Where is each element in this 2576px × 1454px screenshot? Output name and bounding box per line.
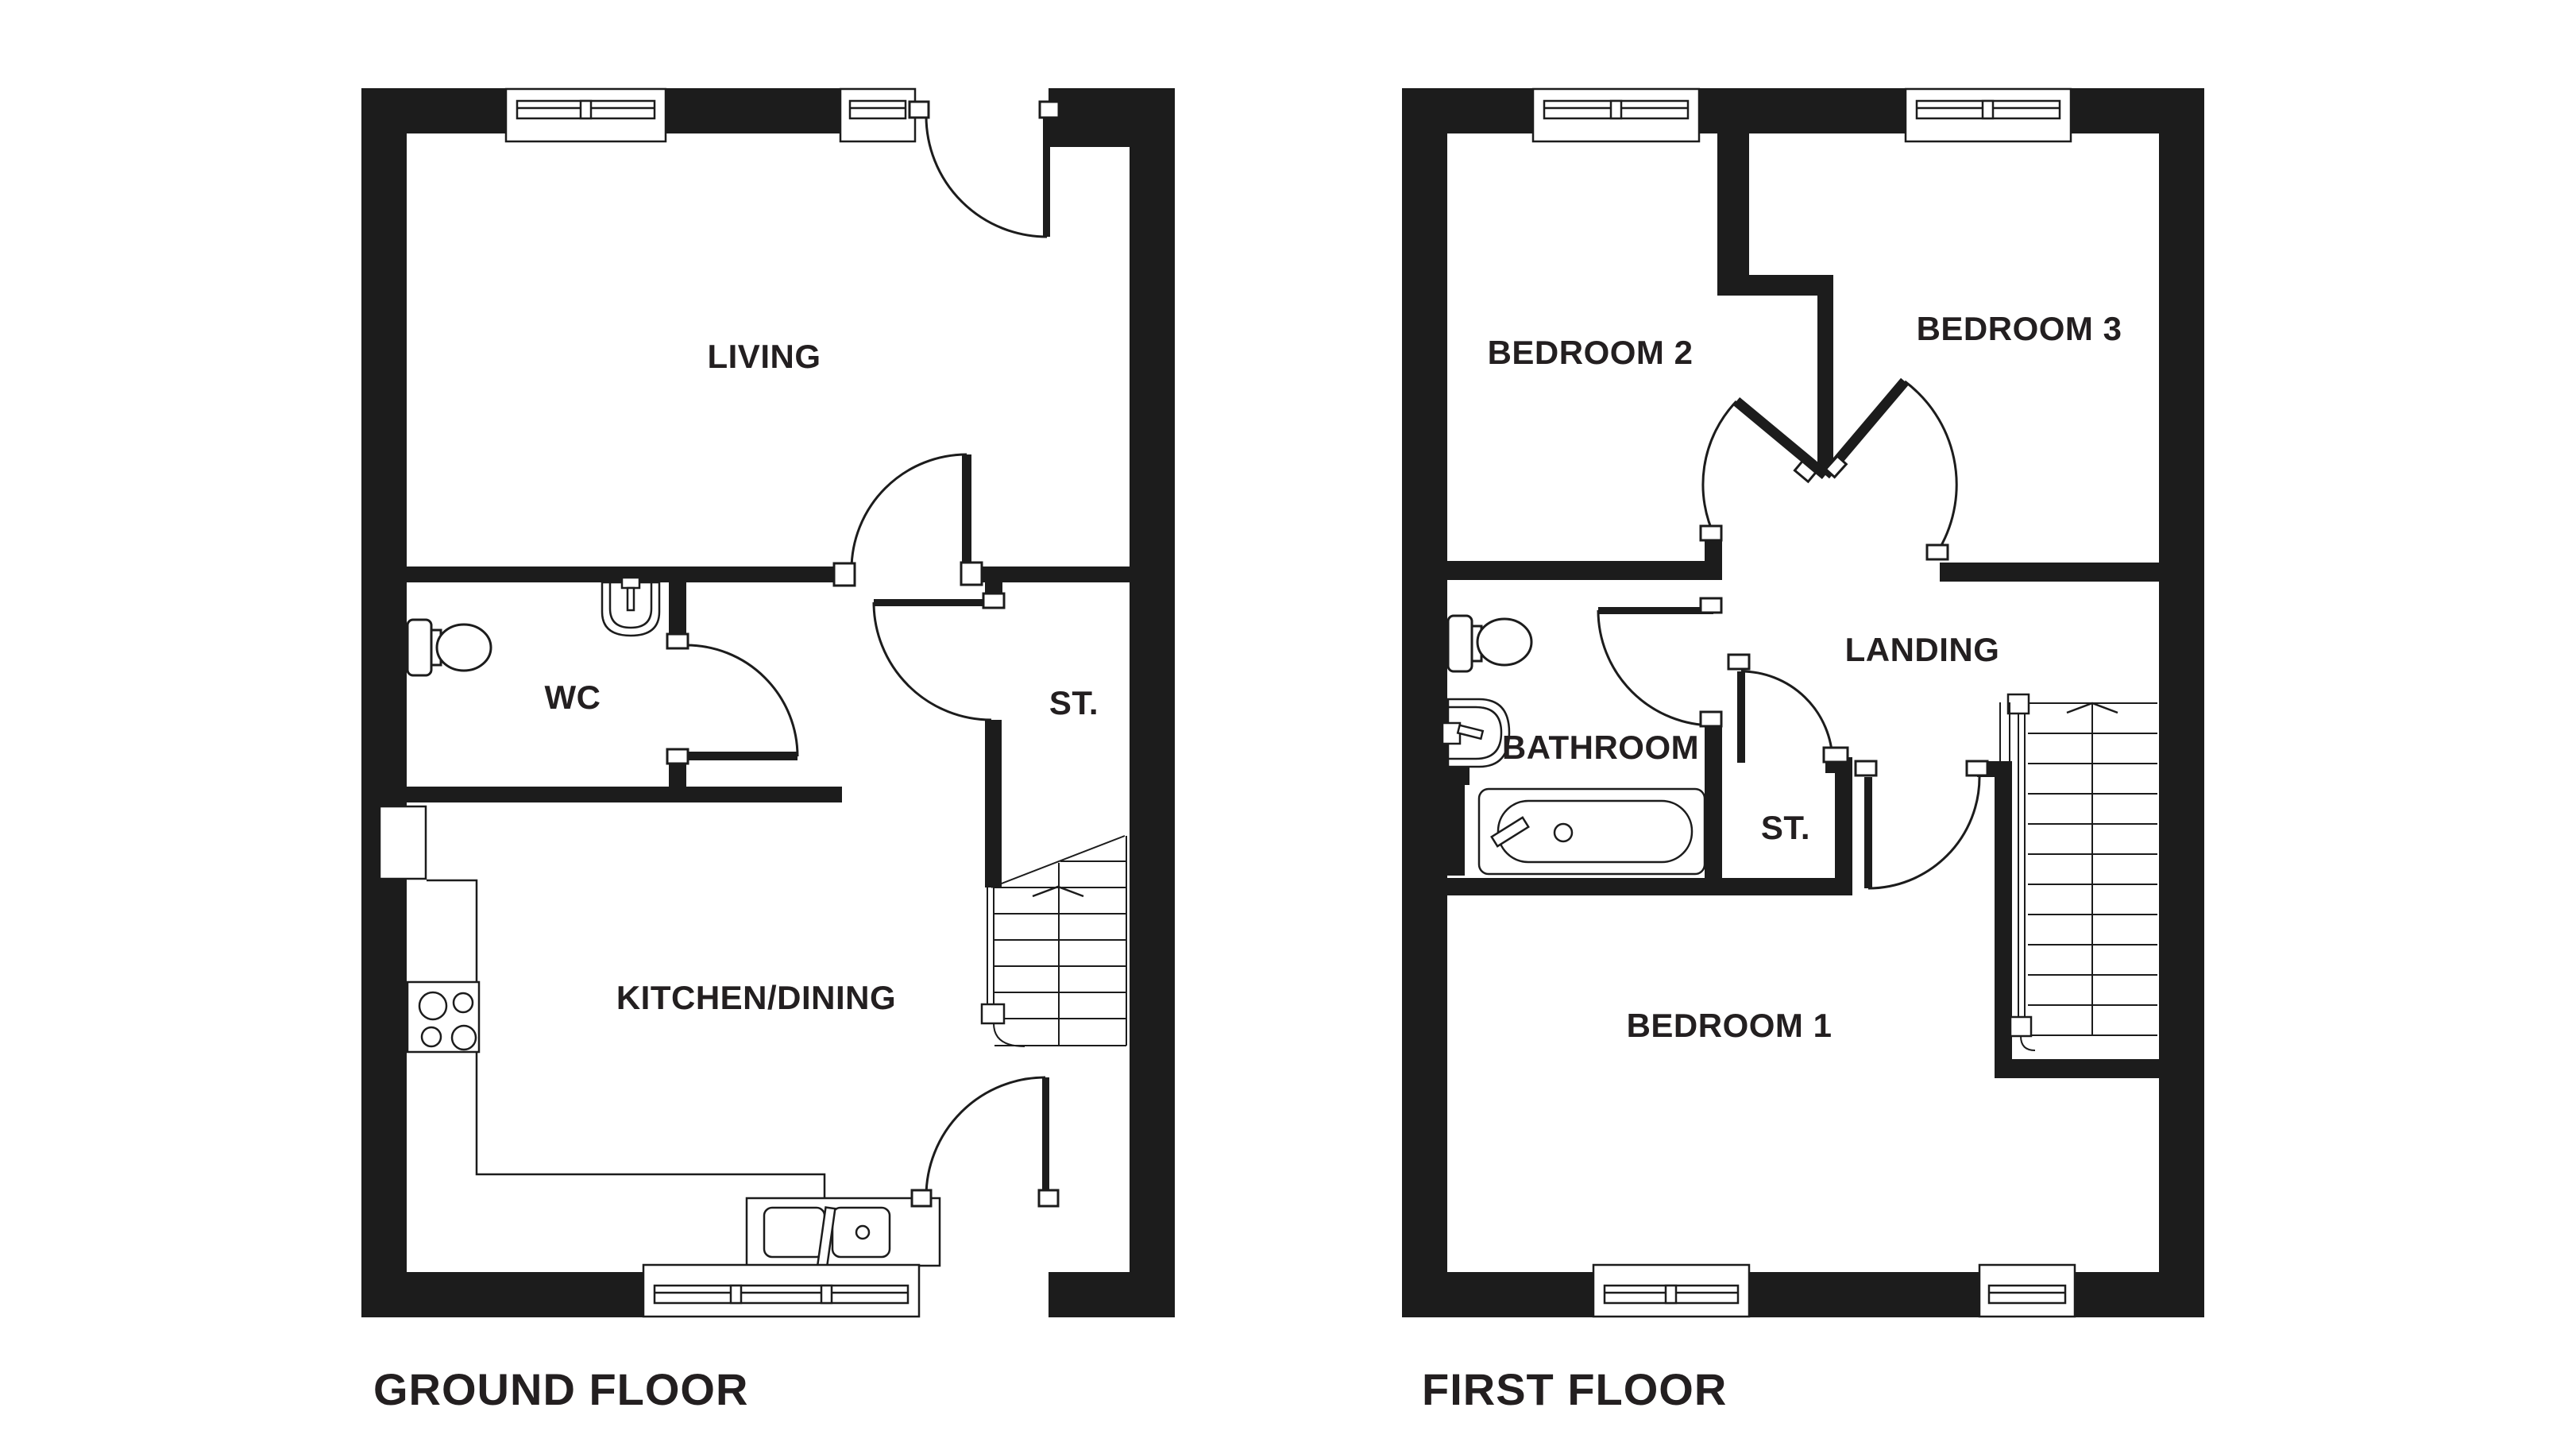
ff-bath-stub-v — [1447, 785, 1465, 876]
ff-bed2-bed3-divider — [1717, 133, 1749, 291]
room-label-kitchen-dining: KITCHEN/DINING — [616, 979, 896, 1016]
room-label-living: LIVING — [707, 338, 821, 375]
room-label-bedroom2: BEDROOM 2 — [1488, 334, 1694, 371]
window — [643, 1265, 919, 1317]
staircase-up-icon — [982, 836, 1126, 1046]
hob-icon — [407, 982, 479, 1052]
floorplan-page: LIVING WC ST. KITCHEN/DINING GROUND FLOO… — [0, 0, 2576, 1454]
ff-wall-right — [2159, 88, 2204, 1317]
ff-stair-wall-west — [1995, 777, 2012, 1065]
staircase-up-icon — [2000, 694, 2157, 1050]
hand-basin-icon — [602, 578, 659, 636]
bathtub-icon — [1479, 789, 1705, 874]
window — [1906, 89, 2071, 141]
first-floor-title: FIRST FLOOR — [1422, 1364, 1727, 1414]
ff-bathroom-store-wall — [1705, 725, 1722, 880]
ground-floor-plan: LIVING WC ST. KITCHEN/DINING GROUND FLOO… — [361, 88, 1175, 1414]
living-door — [852, 454, 971, 570]
kitchen-sink-icon — [747, 1198, 940, 1270]
gf-wall-bottom-right — [1049, 1272, 1175, 1317]
door-jamb — [1701, 526, 1721, 540]
door-jamb — [1927, 545, 1948, 559]
room-label-store-ff: ST. — [1761, 809, 1810, 846]
room-label-wc: WC — [545, 679, 601, 716]
newel-post — [2008, 694, 2029, 713]
door-jamb — [1040, 102, 1059, 118]
door-jamb — [961, 563, 982, 585]
gf-hall-stairs-wall — [985, 720, 1002, 887]
ff-wall-bottom — [1402, 1272, 2204, 1317]
ff-bed3-wall-bottom — [1940, 563, 2159, 582]
back-door — [926, 1077, 1049, 1198]
door-jamb — [1701, 598, 1721, 613]
door-jamb — [667, 634, 688, 648]
store-door-ff — [1737, 671, 1833, 763]
door-jamb — [667, 749, 688, 764]
door-jamb — [912, 1190, 931, 1206]
door-jamb — [1039, 1190, 1058, 1206]
window — [1593, 1265, 1749, 1317]
gf-kitchen-recess — [380, 806, 426, 879]
room-label-landing: LANDING — [1845, 631, 2000, 668]
door-jamb — [1728, 655, 1749, 669]
understairs-store-door — [874, 599, 991, 720]
bedroom1-door — [1864, 777, 1979, 888]
window — [1979, 1265, 2075, 1317]
hand-basin-icon — [1442, 699, 1509, 767]
gf-living-wall-right — [971, 567, 1130, 582]
door-jamb — [1824, 748, 1848, 762]
window — [1533, 89, 1699, 141]
ff-store-wall-right — [1835, 757, 1852, 880]
room-label-bedroom1: BEDROOM 1 — [1627, 1007, 1833, 1044]
window — [840, 89, 915, 141]
room-label-bedroom3: BEDROOM 3 — [1917, 310, 2122, 347]
front-door — [926, 116, 1050, 237]
door-jamb — [834, 563, 855, 586]
first-floor-plan: BEDROOM 2 BEDROOM 3 LANDING BATHROOM ST.… — [1402, 88, 2204, 1414]
room-label-store-gf: ST. — [1049, 684, 1099, 721]
gf-wall-right — [1130, 88, 1175, 1317]
ff-wall-left — [1402, 88, 1447, 1317]
ff-stair-wall-bottom — [1995, 1059, 2159, 1078]
ff-bathroom-wall-top — [1447, 561, 1722, 580]
toilet-icon — [407, 620, 491, 675]
door-jamb — [910, 102, 929, 118]
gf-wc-wall-stub-top — [669, 582, 686, 641]
ff-bath-stub-h — [1447, 768, 1470, 785]
ff-bathroom-wall-bottom — [1447, 878, 1852, 895]
newel-post — [2010, 1017, 2031, 1036]
room-label-bathroom: BATHROOM — [1502, 729, 1699, 766]
gf-wc-wall-bottom — [407, 787, 842, 802]
toilet-icon — [1448, 616, 1531, 671]
ff-wall-top — [1402, 88, 2204, 133]
gf-wall-left — [361, 88, 407, 1317]
door-jamb — [1967, 761, 1987, 775]
ground-floor-title: GROUND FLOOR — [373, 1364, 748, 1414]
wc-door — [686, 645, 798, 760]
door-jamb — [1856, 761, 1876, 775]
bathroom-door — [1598, 607, 1713, 725]
newel-post — [982, 1004, 1004, 1023]
ff-divider-jog — [1717, 275, 1833, 296]
ff-divider-stub — [1817, 296, 1833, 475]
door-jamb — [1701, 712, 1721, 726]
window — [506, 89, 666, 141]
door-jamb — [983, 594, 1004, 608]
floorplan-drawing: LIVING WC ST. KITCHEN/DINING GROUND FLOO… — [0, 0, 2576, 1454]
